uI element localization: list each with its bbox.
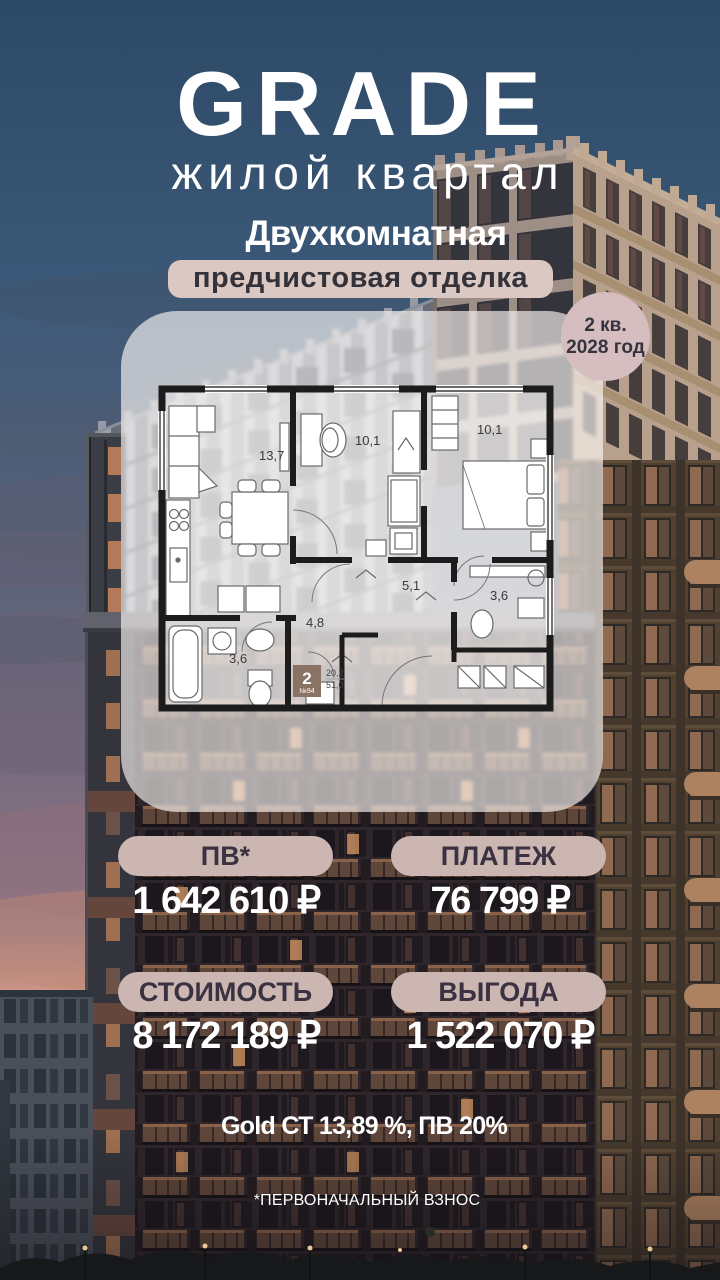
svg-text:51,0: 51,0 [326, 680, 344, 690]
svg-text:3,6: 3,6 [229, 651, 247, 666]
svg-text:20,2: 20,2 [326, 668, 344, 678]
svg-text:5,1: 5,1 [402, 578, 420, 593]
svg-text:2: 2 [302, 669, 311, 688]
svg-text:4,8: 4,8 [306, 615, 324, 630]
svg-text:13,7: 13,7 [259, 448, 284, 463]
svg-text:10,1: 10,1 [355, 433, 380, 448]
svg-text:3,6: 3,6 [490, 588, 508, 603]
svg-text:№94: №94 [299, 688, 314, 695]
svg-text:10,1: 10,1 [477, 422, 502, 437]
